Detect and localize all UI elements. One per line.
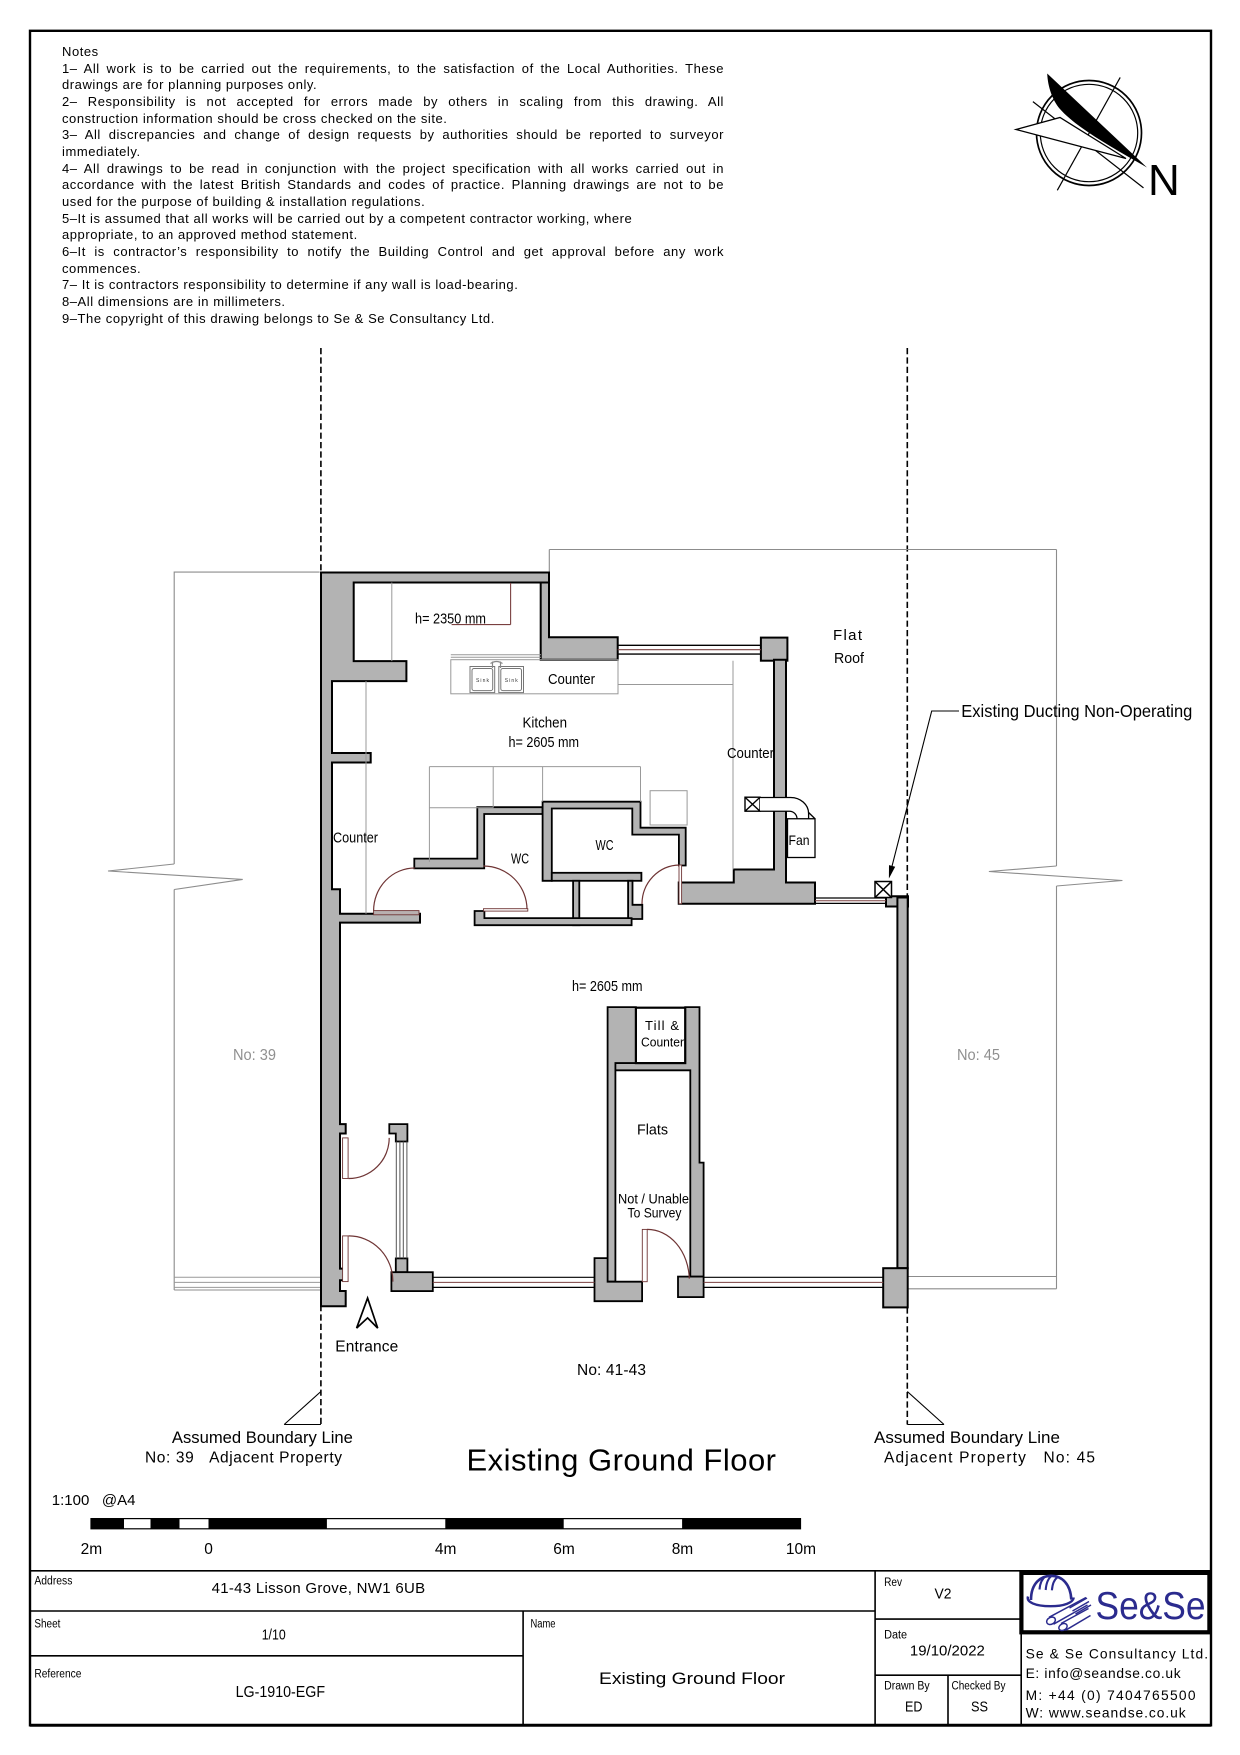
svg-text:No: 45: No: 45	[957, 1047, 1000, 1064]
svg-text:Entrance: Entrance	[335, 1339, 398, 1356]
svg-text:E: info@seandse.co.uk: E: info@seandse.co.uk	[1026, 1666, 1181, 1681]
svg-text:Flat: Flat	[833, 627, 863, 644]
svg-text:Flats: Flats	[637, 1122, 668, 1139]
svg-text:Sink: Sink	[476, 678, 490, 684]
svg-text:Name: Name	[531, 1619, 556, 1631]
svg-text:To Survey: To Survey	[628, 1206, 682, 1221]
svg-text:Address: Address	[34, 1576, 72, 1588]
svg-text:Sheet: Sheet	[34, 1619, 61, 1631]
svg-text:h= 2350 mm: h= 2350 mm	[415, 611, 486, 628]
svg-text:Existing Ground Floor: Existing Ground Floor	[467, 1443, 777, 1478]
svg-text:WC: WC	[596, 837, 614, 854]
svg-text:Se & Se Consultancy Ltd.: Se & Se Consultancy Ltd.	[1026, 1647, 1209, 1662]
svg-text:V2: V2	[935, 1586, 952, 1603]
svg-text:Drawn By: Drawn By	[884, 1681, 930, 1693]
svg-text:2m: 2m	[81, 1541, 103, 1558]
svg-text:Fan: Fan	[789, 832, 810, 848]
svg-text:Se&Se: Se&Se	[1096, 1585, 1206, 1628]
svg-text:Sink: Sink	[505, 678, 519, 684]
svg-text:Counter: Counter	[727, 745, 774, 762]
svg-text:Counter: Counter	[548, 671, 595, 688]
svg-text:0: 0	[204, 1541, 213, 1558]
svg-text:h= 2605 mm: h= 2605 mm	[572, 978, 643, 995]
svg-text:No: 39 Adjacent Property: No: 39 Adjacent Property	[145, 1450, 342, 1467]
svg-text:h= 2605 mm: h= 2605 mm	[509, 734, 580, 751]
svg-text:Reference: Reference	[34, 1669, 81, 1681]
svg-text:Date: Date	[884, 1630, 907, 1642]
svg-text:Till &: Till &	[645, 1018, 679, 1033]
svg-text:W: www.seandse.co.uk: W: www.seandse.co.uk	[1026, 1706, 1186, 1721]
svg-text:8m: 8m	[672, 1541, 694, 1558]
svg-text:No: 39: No: 39	[233, 1047, 276, 1064]
svg-text:6m: 6m	[553, 1541, 575, 1558]
svg-text:19/10/2022: 19/10/2022	[910, 1643, 985, 1660]
svg-text:1/10: 1/10	[262, 1627, 286, 1644]
svg-text:Roof: Roof	[834, 650, 865, 667]
svg-text:Existing Ground Floor: Existing Ground Floor	[599, 1670, 786, 1688]
svg-text:Not / Unable: Not / Unable	[618, 1192, 689, 1207]
svg-text:WC: WC	[511, 851, 529, 868]
svg-text:Adjacent Property No: 45: Adjacent Property No: 45	[884, 1450, 1095, 1467]
svg-text:Counter: Counter	[333, 830, 378, 847]
svg-text:10m: 10m	[786, 1541, 816, 1558]
svg-text:Counter: Counter	[641, 1035, 685, 1050]
svg-text:No: 41-43: No: 41-43	[577, 1362, 646, 1379]
svg-text:SS: SS	[971, 1699, 988, 1716]
svg-text:Assumed Boundary Line: Assumed Boundary Line	[172, 1428, 353, 1447]
svg-text:N: N	[1148, 156, 1180, 205]
svg-text:ED: ED	[905, 1699, 923, 1716]
svg-text:LG-1910-EGF: LG-1910-EGF	[236, 1684, 326, 1701]
svg-text:41-43 Lisson Grove, NW1 6UB: 41-43 Lisson Grove, NW1 6UB	[212, 1580, 426, 1597]
svg-text:Checked By: Checked By	[952, 1681, 1006, 1693]
svg-text:1:100 @A4: 1:100 @A4	[52, 1492, 136, 1509]
svg-text:Rev: Rev	[884, 1577, 902, 1589]
svg-text:M: +44 (0) 7404765500: M: +44 (0) 7404765500	[1026, 1688, 1196, 1703]
svg-text:Existing Ducting Non-Operating: Existing Ducting Non-Operating	[961, 701, 1192, 721]
svg-text:Assumed Boundary Line: Assumed Boundary Line	[874, 1428, 1060, 1447]
svg-text:Kitchen: Kitchen	[523, 715, 568, 732]
svg-text:4m: 4m	[435, 1541, 457, 1558]
